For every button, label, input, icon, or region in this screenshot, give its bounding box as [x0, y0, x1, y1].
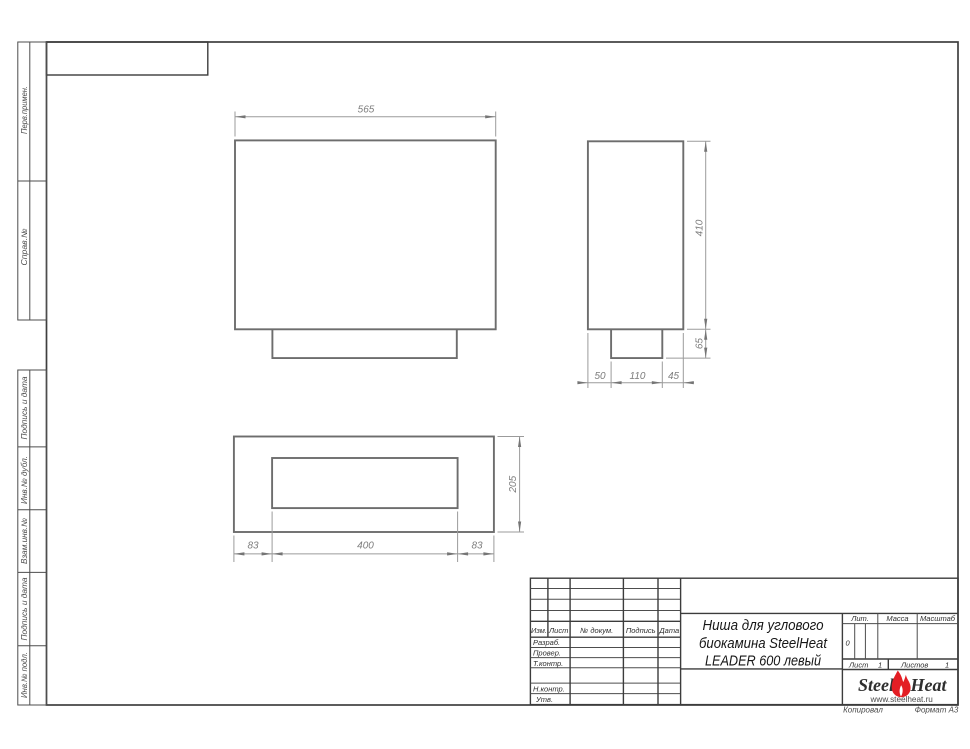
- svg-text:Взам.инв.№: Взам.инв.№: [20, 518, 29, 564]
- svg-text:1: 1: [945, 661, 949, 670]
- svg-text:Подпись: Подпись: [626, 626, 656, 635]
- svg-text:Инв.№ дубл.: Инв.№ дубл.: [20, 456, 29, 504]
- svg-text:№ докум.: № докум.: [580, 626, 613, 635]
- svg-text:1: 1: [878, 661, 882, 670]
- svg-text:Разраб.: Разраб.: [533, 638, 560, 647]
- svg-text:Steel: Steel: [858, 675, 894, 695]
- svg-text:Изм.: Изм.: [531, 626, 547, 635]
- svg-text:Масштаб: Масштаб: [920, 614, 956, 623]
- svg-text:Инв.№ подл.: Инв.№ подл.: [20, 652, 29, 698]
- svg-text:Копировал: Копировал: [843, 706, 883, 715]
- svg-text:Перв.примен.: Перв.примен.: [20, 86, 29, 134]
- svg-text:45: 45: [668, 371, 680, 382]
- svg-text:Лит.: Лит.: [850, 614, 869, 623]
- svg-text:Н.контр.: Н.контр.: [533, 685, 565, 694]
- svg-text:Утв.: Утв.: [535, 695, 553, 704]
- svg-text:Подпись и дата: Подпись и дата: [20, 577, 29, 641]
- svg-text:Дата: Дата: [658, 626, 679, 635]
- svg-text:Ниша для углового: Ниша для углового: [703, 617, 824, 634]
- svg-text:400: 400: [357, 541, 374, 552]
- svg-text:Листов: Листов: [900, 661, 928, 670]
- svg-text:565: 565: [358, 105, 375, 116]
- svg-text:Подпись и дата: Подпись и дата: [20, 376, 29, 440]
- svg-text:Провер.: Провер.: [533, 649, 561, 658]
- svg-text:50: 50: [594, 371, 606, 382]
- svg-text:Формат А3: Формат А3: [915, 706, 959, 715]
- svg-text:биокамина SteelHeat: биокамина SteelHeat: [699, 635, 828, 652]
- svg-text:Heat: Heat: [910, 675, 948, 695]
- svg-text:0: 0: [846, 639, 851, 648]
- svg-text:Справ.№: Справ.№: [20, 228, 29, 265]
- svg-text:205: 205: [508, 475, 519, 493]
- svg-text:Т.контр.: Т.контр.: [533, 659, 563, 668]
- svg-text:www.steelheat.ru: www.steelheat.ru: [870, 695, 934, 704]
- svg-text:110: 110: [630, 371, 646, 382]
- svg-text:LEADER 600 левый: LEADER 600 левый: [705, 653, 821, 670]
- svg-text:83: 83: [247, 541, 259, 552]
- svg-text:Масса: Масса: [886, 614, 908, 623]
- svg-text:Лист: Лист: [548, 626, 568, 635]
- svg-text:410: 410: [695, 219, 706, 236]
- svg-text:83: 83: [471, 541, 483, 552]
- svg-text:Лист: Лист: [848, 661, 868, 670]
- svg-text:65: 65: [695, 338, 706, 350]
